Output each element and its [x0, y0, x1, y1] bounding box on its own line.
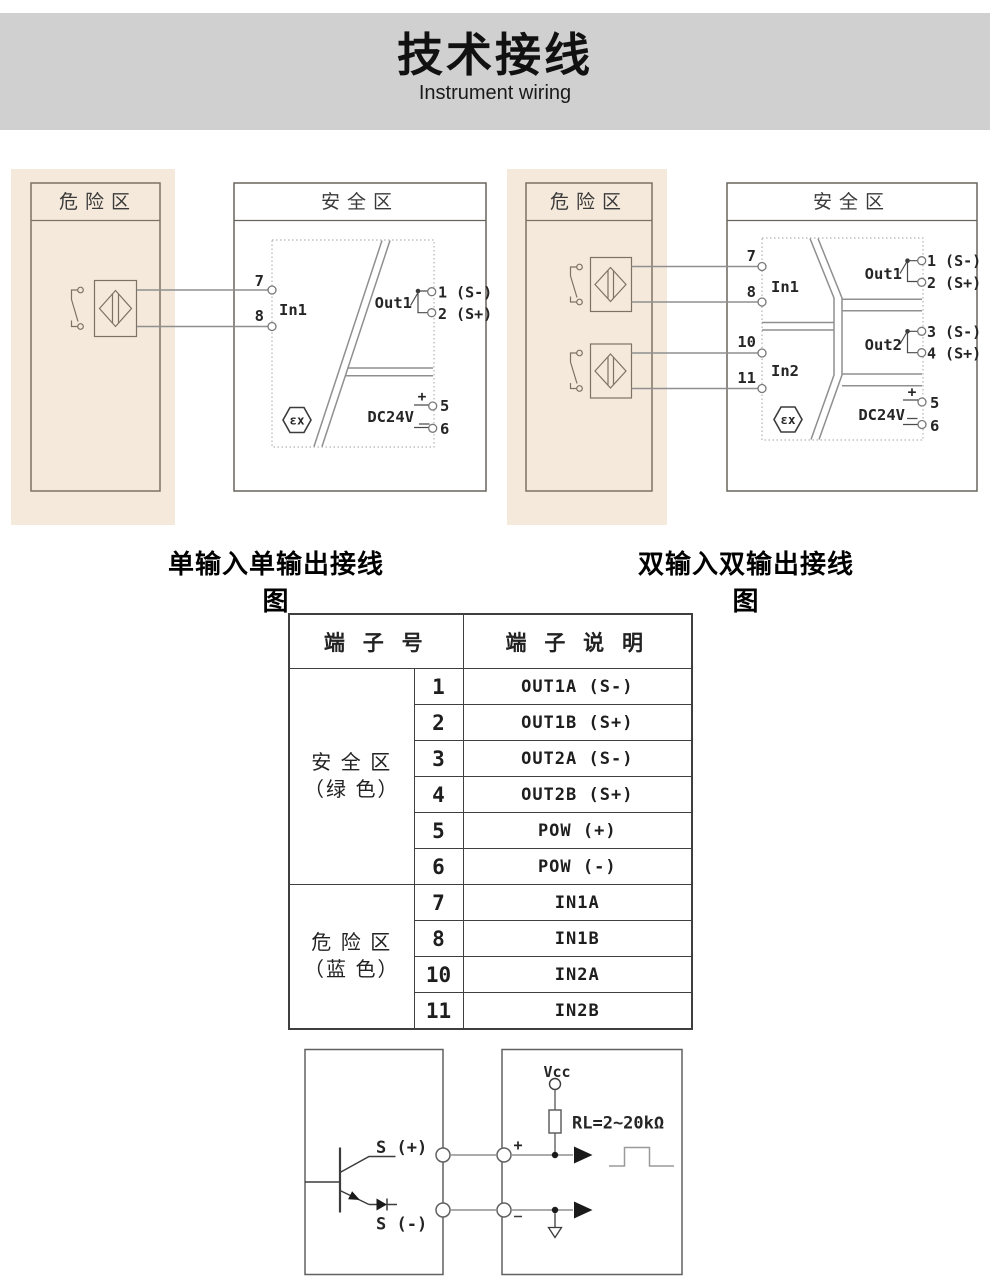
- terminal-no: 11: [414, 993, 463, 1030]
- right-wiring-diagram: 危险区 安全区: [507, 169, 981, 525]
- terminal-desc: IN2A: [463, 957, 692, 993]
- label-out1: Out1: [865, 265, 902, 283]
- col-header-desc: 端 子 说 明: [463, 614, 692, 669]
- group-hazard-zone: 危 险 区 （蓝 色）: [289, 885, 414, 1030]
- label-out2: Out2: [865, 336, 902, 354]
- terminal-3: [918, 327, 926, 335]
- group-label-line1: 安 全 区: [290, 750, 414, 777]
- left-diagram-caption: 单输入单输出接线图: [158, 544, 394, 618]
- output-circuit-diagram: S (+) S (-) Vcc RL=2~20kΩ +: [305, 1050, 682, 1275]
- label-t8: 8: [747, 283, 756, 301]
- terminal-no: 8: [414, 921, 463, 957]
- label-s-minus: S (-): [376, 1215, 427, 1235]
- terminal-no: 2: [414, 705, 463, 741]
- label-t6: 6: [440, 420, 449, 438]
- terminal-desc: OUT2A (S-): [463, 741, 692, 777]
- label-t10: 10: [737, 333, 756, 351]
- label-t5: 5: [930, 394, 939, 412]
- label-out1-pos: 2 (S+): [438, 305, 492, 323]
- hazard-zone-background: [11, 169, 175, 525]
- terminal-8: [268, 323, 276, 331]
- label-out2-pos: 4 (S+): [927, 345, 981, 363]
- table-header-row: 端 子 号 端 子 说 明: [289, 614, 692, 669]
- pulse-waveform: [609, 1148, 674, 1167]
- terminal-no: 3: [414, 741, 463, 777]
- label-vcc: Vcc: [543, 1063, 570, 1081]
- terminal-no: 7: [414, 885, 463, 921]
- source-box: [305, 1050, 443, 1275]
- terminal-6: [918, 421, 926, 429]
- junction-dot-bottom: [552, 1207, 558, 1213]
- terminal-no: 4: [414, 777, 463, 813]
- table-row: 安 全 区 （绿 色） 1 OUT1A (S-): [289, 669, 692, 705]
- label-dc24v: DC24V: [367, 408, 414, 426]
- label-plus: +: [513, 1136, 522, 1154]
- safe-zone-label: 安全区: [813, 191, 891, 213]
- diode-symbol: [369, 1199, 397, 1211]
- label-t8: 8: [255, 307, 264, 325]
- terminal-desc: OUT2B (S+): [463, 777, 692, 813]
- table-row: 危 险 区 （蓝 色） 7 IN1A: [289, 885, 692, 921]
- safe-zone-label: 安全区: [321, 191, 399, 213]
- col-header-terminal: 端 子 号: [289, 614, 463, 669]
- label-out1: Out1: [375, 294, 412, 312]
- label-out1-pos: 2 (S+): [927, 274, 981, 292]
- terminal-7: [758, 263, 766, 271]
- label-t5: 5: [440, 397, 449, 415]
- group-safe-zone: 安 全 区 （绿 色）: [289, 669, 414, 885]
- hazard-zone-background: [507, 169, 667, 525]
- label-out1-neg: 1 (S-): [438, 284, 492, 302]
- svg-text:εx: εx: [289, 413, 305, 428]
- terminal-5: [918, 398, 926, 406]
- label-t6: 6: [930, 417, 939, 435]
- terminal-11: [758, 385, 766, 393]
- terminal-table: 端 子 号 端 子 说 明 安 全 区 （绿 色） 1 OUT1A (S-) 2…: [288, 613, 693, 1030]
- terminal-desc: POW (+): [463, 813, 692, 849]
- svg-text:εx: εx: [780, 412, 796, 427]
- terminal-desc: OUT1B (S+): [463, 705, 692, 741]
- left-wiring-diagram: 危险区 安全区: [11, 169, 492, 525]
- label-dc24v: DC24V: [858, 406, 905, 424]
- terminal-2: [428, 309, 436, 317]
- terminal-desc: IN2B: [463, 993, 692, 1030]
- signal-arrow-top: [574, 1147, 593, 1164]
- terminal-1: [918, 257, 926, 265]
- terminal-desc: IN1B: [463, 921, 692, 957]
- label-plus: +: [418, 389, 427, 405]
- label-t7: 7: [747, 247, 756, 265]
- label-plus: +: [908, 385, 917, 401]
- label-t11: 11: [737, 369, 756, 387]
- terminal-2: [918, 278, 926, 286]
- terminal-desc: IN1A: [463, 885, 692, 921]
- group-label-line1: 危 险 区: [290, 930, 414, 957]
- terminal-8: [758, 298, 766, 306]
- terminal-no: 1: [414, 669, 463, 705]
- right-diagram-caption: 双输入双输出接线图: [626, 544, 866, 618]
- hazard-zone-label: 危险区: [59, 191, 137, 213]
- terminal-desc: POW (-): [463, 849, 692, 885]
- terminal-no: 5: [414, 813, 463, 849]
- terminal-no: 10: [414, 957, 463, 993]
- page: 技术接线 Instrument wiring 危险区 安全区: [0, 0, 990, 1283]
- label-in2: In2: [771, 362, 799, 380]
- terminal-10: [758, 349, 766, 357]
- label-rl: RL=2~20kΩ: [572, 1114, 664, 1134]
- group-label-line2: （绿 色）: [290, 777, 414, 804]
- junction-dot-top: [552, 1152, 558, 1158]
- label-in1: In1: [771, 278, 799, 296]
- link-wires: [450, 1155, 573, 1210]
- signal-arrow-bottom: [574, 1202, 593, 1219]
- label-out2-neg: 3 (S-): [927, 323, 981, 341]
- terminal-4: [918, 349, 926, 357]
- label-out1-neg: 1 (S-): [927, 252, 981, 270]
- terminal-7: [268, 286, 276, 294]
- group-label-line2: （蓝 色）: [290, 957, 414, 984]
- load-box: [502, 1050, 682, 1275]
- terminal-no: 6: [414, 849, 463, 885]
- hazard-zone-label: 危险区: [550, 191, 628, 213]
- terminal-1: [428, 288, 436, 296]
- label-t7: 7: [255, 272, 264, 290]
- label-s-plus: S (+): [376, 1138, 427, 1158]
- terminal-desc: OUT1A (S-): [463, 669, 692, 705]
- label-in1: In1: [279, 301, 307, 319]
- ground-symbol: [549, 1213, 562, 1237]
- terminal-5: [429, 402, 437, 410]
- resistor-symbol: [549, 1110, 561, 1133]
- terminal-6: [429, 424, 437, 432]
- terminal-circles: [436, 1148, 511, 1217]
